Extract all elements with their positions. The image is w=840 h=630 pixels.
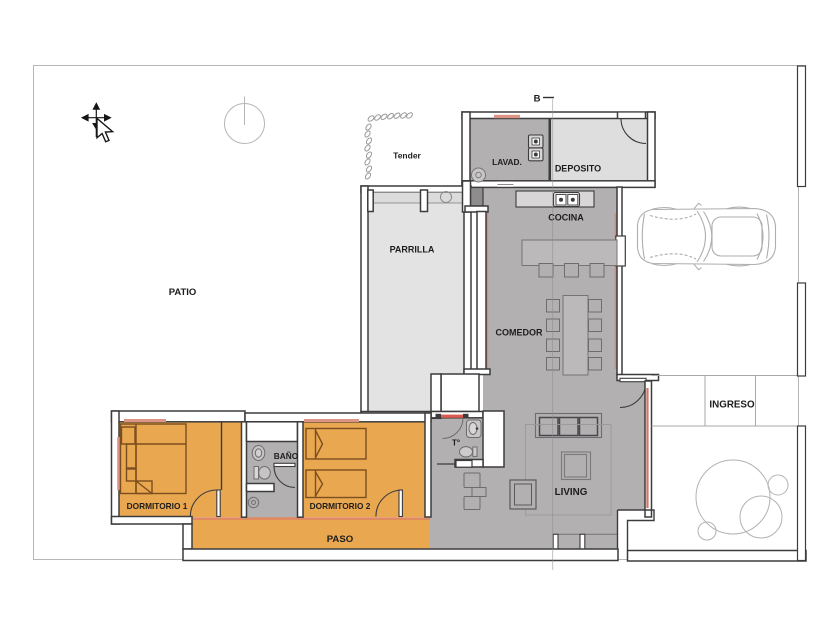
svg-text:COCINA: COCINA — [548, 213, 584, 223]
svg-text:LIVING: LIVING — [555, 487, 588, 498]
svg-text:T°: T° — [452, 439, 460, 448]
svg-text:DEPOSITO: DEPOSITO — [555, 164, 601, 174]
svg-text:B: B — [534, 94, 541, 105]
svg-text:BAÑO: BAÑO — [274, 451, 299, 461]
svg-text:DORMITORIO 2: DORMITORIO 2 — [310, 501, 371, 511]
svg-text:INGRESO: INGRESO — [709, 400, 755, 411]
svg-text:PATIO: PATIO — [169, 287, 197, 298]
svg-text:Tender: Tender — [393, 151, 421, 161]
svg-text:PARRILLA: PARRILLA — [390, 245, 435, 255]
svg-text:LAVAD.: LAVAD. — [492, 157, 522, 167]
svg-text:PASO: PASO — [327, 534, 354, 545]
svg-text:COMEDOR: COMEDOR — [496, 328, 544, 338]
svg-text:DORMITORIO 1: DORMITORIO 1 — [127, 501, 188, 511]
